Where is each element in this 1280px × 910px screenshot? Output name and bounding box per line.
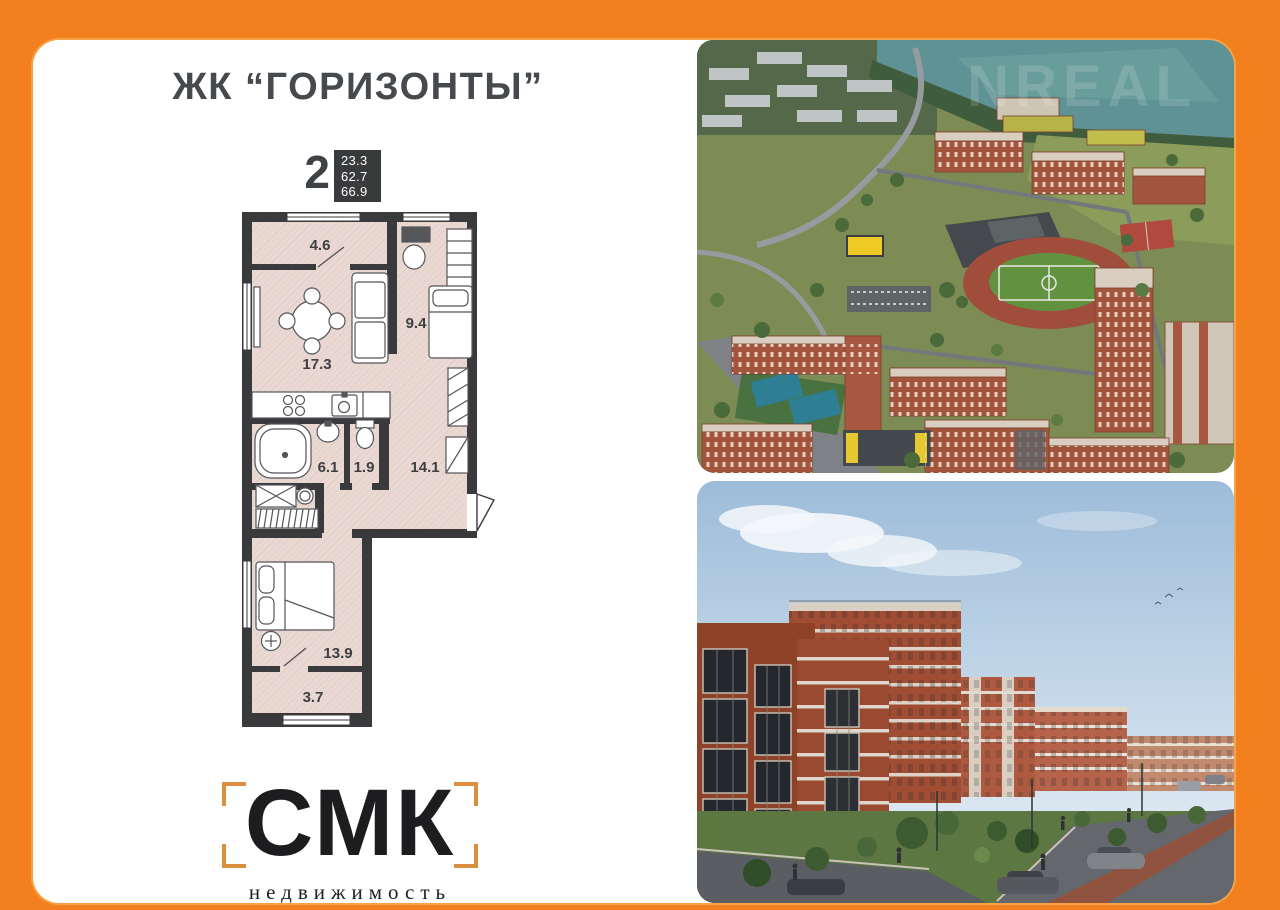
dining-table xyxy=(292,301,332,341)
area-badge: 23.3 62.7 66.9 xyxy=(334,150,381,202)
watermark: NREAL xyxy=(967,54,1197,119)
hall-wardrobe xyxy=(448,368,468,426)
listing-poster: ЖК “ГОРИЗОНТЫ” 2 23.3 62.7 66.9 xyxy=(0,0,1280,910)
area-value: 23.3 xyxy=(334,153,381,169)
room-label: 13.9 xyxy=(323,645,352,662)
room-label: 1.9 xyxy=(354,459,375,476)
aerial-render-photo: NREAL xyxy=(697,40,1234,473)
area-value: 62.7 xyxy=(334,169,381,185)
room-label: 3.7 xyxy=(303,689,324,706)
radiator xyxy=(254,287,260,347)
page-title: ЖК “ГОРИЗОНТЫ” xyxy=(88,66,628,109)
area-value: 66.9 xyxy=(334,184,381,200)
room-label: 4.6 xyxy=(310,237,331,254)
rooms-count: 2 xyxy=(278,146,330,198)
logo-subtitle: недвижимость xyxy=(193,880,507,905)
room-label: 6.1 xyxy=(318,459,339,476)
developer-logo: СМК xyxy=(222,782,478,868)
room-label: 9.4 xyxy=(406,315,428,332)
fridge xyxy=(363,392,390,418)
dresser xyxy=(402,227,430,242)
room-label: 14.1 xyxy=(410,459,439,476)
wardrobe xyxy=(447,229,472,293)
content-panel: ЖК “ГОРИЗОНТЫ” 2 23.3 62.7 66.9 xyxy=(33,40,1234,903)
entry-door xyxy=(467,494,494,531)
room-label: 17.3 xyxy=(302,356,331,373)
bathtub xyxy=(255,424,311,478)
chair xyxy=(403,245,425,269)
logo-name: СМК xyxy=(202,774,498,872)
toilet xyxy=(356,420,374,428)
floor-plan: 4.6 17.3 9.4 6.1 1.9 14.1 13.9 3.7 xyxy=(238,210,500,730)
street-render-photo xyxy=(697,481,1234,903)
